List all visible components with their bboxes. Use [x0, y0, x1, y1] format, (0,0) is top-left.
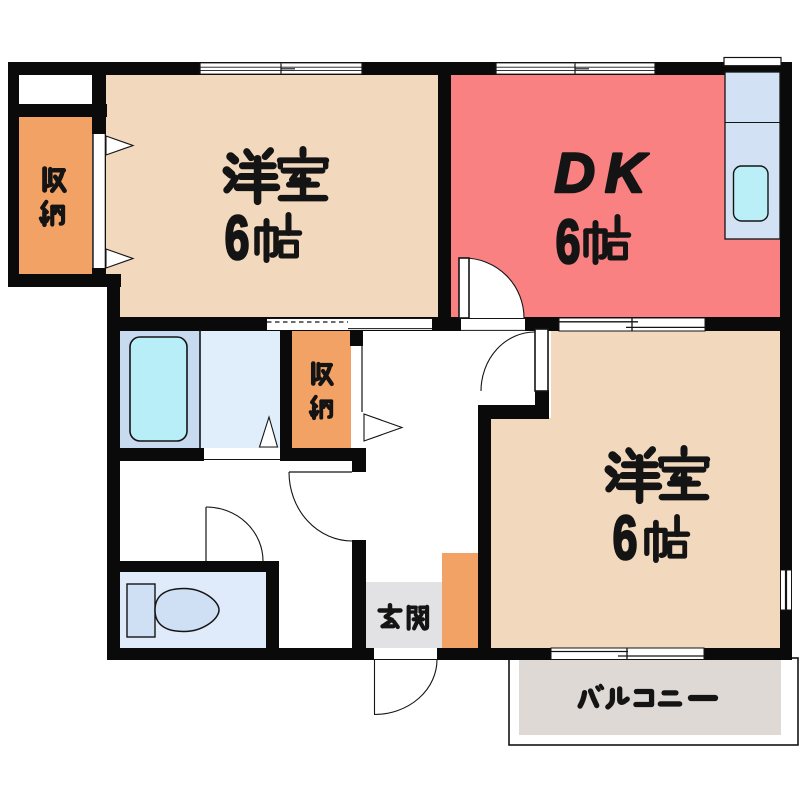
svg-text:6: 6	[613, 504, 638, 573]
svg-text:6: 6	[225, 204, 250, 273]
svg-text:6: 6	[556, 208, 581, 277]
svg-text:DK: DK	[555, 141, 656, 204]
